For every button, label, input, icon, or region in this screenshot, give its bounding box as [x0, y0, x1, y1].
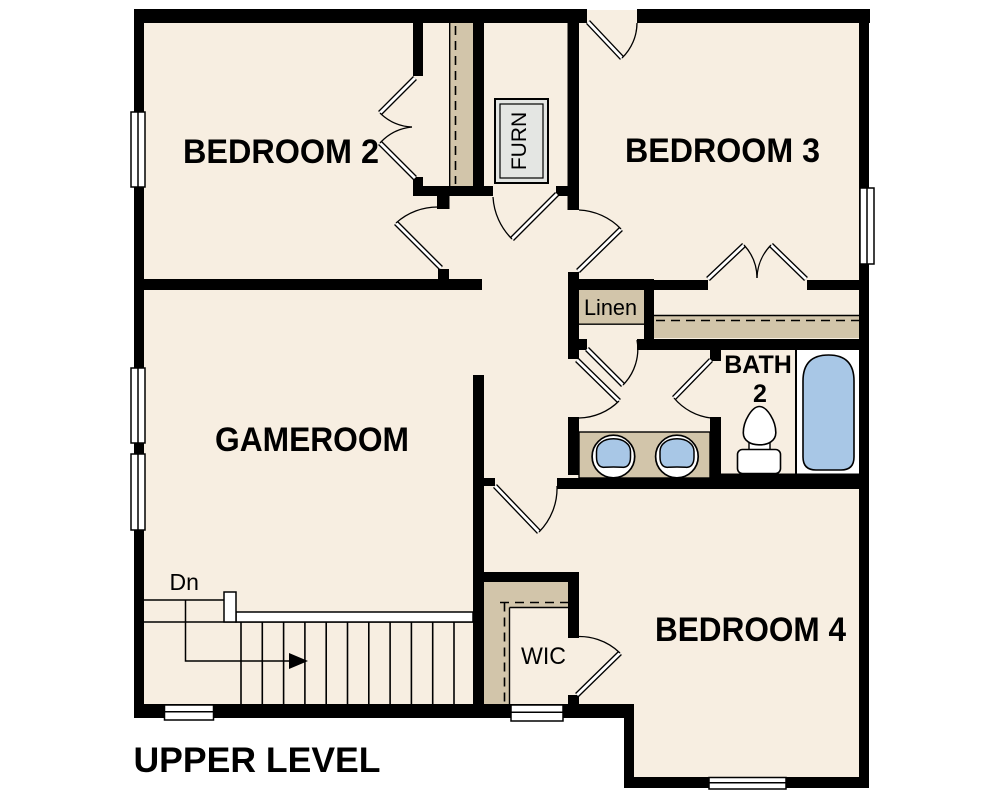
- svg-text:BATH: BATH: [724, 351, 792, 379]
- svg-text:BEDROOM 3: BEDROOM 3: [625, 132, 820, 170]
- svg-text:GAMEROOM: GAMEROOM: [215, 421, 409, 459]
- svg-text:BEDROOM 4: BEDROOM 4: [655, 611, 846, 649]
- svg-text:Dn: Dn: [170, 569, 199, 595]
- svg-text:UPPER LEVEL: UPPER LEVEL: [134, 740, 381, 780]
- svg-text:FURN: FURN: [508, 112, 531, 170]
- svg-text:BEDROOM 2: BEDROOM 2: [183, 133, 379, 171]
- svg-text:2: 2: [753, 380, 767, 408]
- svg-text:Linen: Linen: [584, 295, 637, 320]
- svg-text:WIC: WIC: [521, 643, 566, 670]
